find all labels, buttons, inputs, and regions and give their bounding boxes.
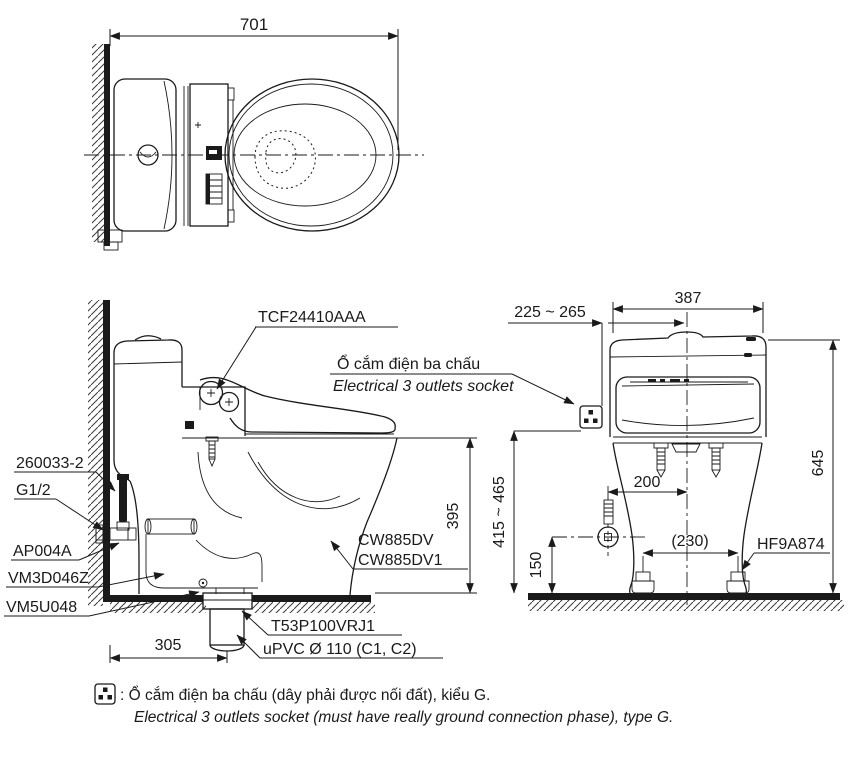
label-bowl-model-1: CW885DV xyxy=(358,532,434,549)
dim-socket-offset: 225 ~ 265 xyxy=(514,304,586,321)
floor-bolt-caps xyxy=(632,556,749,593)
trapway-detail xyxy=(145,519,262,594)
wall-hatch xyxy=(92,44,104,242)
socket-icon xyxy=(95,684,115,704)
dim-395: 395 xyxy=(445,503,462,530)
dim-305: 305 xyxy=(155,637,182,654)
dim-supply-height: 150 xyxy=(528,552,545,579)
dim-bolt-spacing: (230) xyxy=(671,533,708,550)
toilet-installation-drawing: 701 xyxy=(0,0,850,777)
technical-drawing: 701 xyxy=(0,0,850,777)
washlet-front-view xyxy=(616,377,760,433)
side-view: 395 305 TCF24410AAA Ổ cắm điện ba chấu E… xyxy=(4,300,574,663)
supply-hose xyxy=(119,478,127,522)
label-bolt-cap: HF9A874 xyxy=(757,536,825,553)
bowl-rear-edge xyxy=(350,438,397,595)
label-outlet: VM5U048 xyxy=(6,599,77,616)
label-socket-vi: Ổ cắm điện ba chấu xyxy=(337,354,480,373)
footnote-vi: : Ổ cắm điện ba chấu (dây phải được nối … xyxy=(120,686,490,704)
mounting-bolts xyxy=(654,443,723,477)
wall-line-side xyxy=(103,300,110,602)
top-view: 701 xyxy=(84,15,424,250)
floor-line-front xyxy=(528,593,840,600)
label-seat-model: TCF24410AAA xyxy=(258,309,366,326)
dim-socket-height: 415 ~ 465 xyxy=(491,476,508,548)
label-pipe: uPVC Ø 110 (C1, C2) xyxy=(263,641,417,658)
bowl-left-edge xyxy=(613,443,634,593)
dim-387: 387 xyxy=(675,290,702,307)
dim-701: 701 xyxy=(240,15,268,34)
label-socket-en: Electrical 3 outlets socket xyxy=(333,378,514,395)
supply-valve-front xyxy=(552,486,646,556)
footnote: : Ổ cắm điện ba chấu (dây phải được nối … xyxy=(95,684,673,726)
wall-line xyxy=(104,44,110,246)
footnote-en: Electrical 3 outlets socket (must have r… xyxy=(134,709,673,726)
socket-icon-front xyxy=(580,406,602,428)
tank-side-view xyxy=(114,336,182,481)
label-inlet: VM3D046Z xyxy=(8,570,89,587)
dim-supply-offset: 200 xyxy=(634,474,661,491)
dim-total-height: 645 xyxy=(810,450,827,477)
label-bowl-model-2: CW885DV1 xyxy=(358,552,443,569)
front-view: 387 225 ~ 265 415 ~ 465 150 200 (230) HF… xyxy=(491,290,844,611)
label-joint: T53P100VRJ1 xyxy=(271,618,375,635)
bowl-right-edge xyxy=(742,443,762,593)
label-hose: 260033-2 xyxy=(16,455,84,472)
pedestal-front-edge xyxy=(130,481,139,594)
wall-hatch-side xyxy=(88,300,103,606)
label-valve: AP004A xyxy=(13,543,72,560)
label-thread: G1/2 xyxy=(16,482,51,499)
